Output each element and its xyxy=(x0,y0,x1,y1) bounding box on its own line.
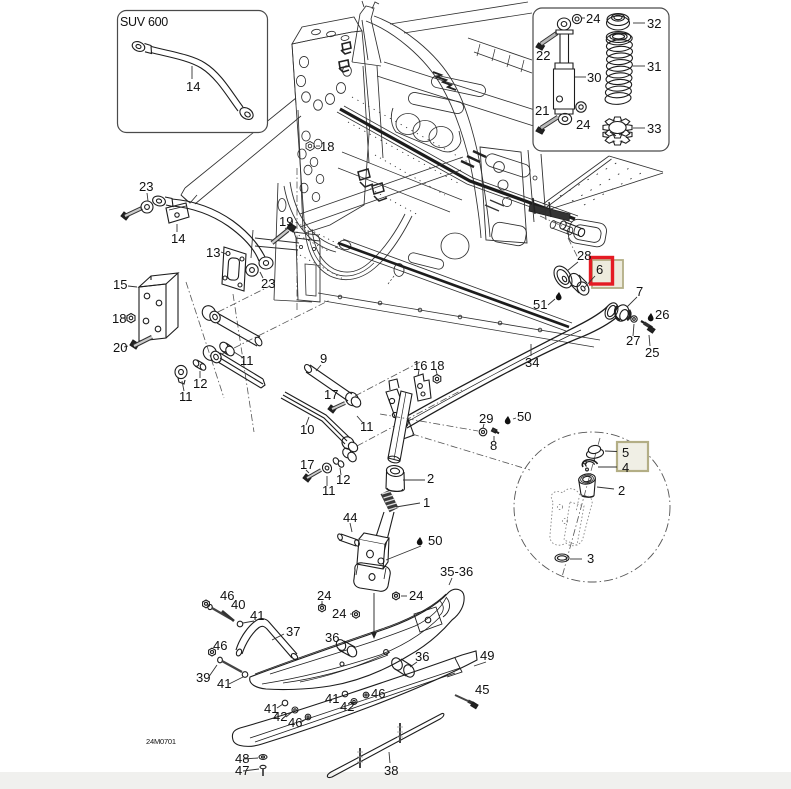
svg-text:18: 18 xyxy=(430,358,444,373)
svg-text:40: 40 xyxy=(231,597,245,612)
svg-text:2: 2 xyxy=(427,471,434,486)
svg-text:34: 34 xyxy=(525,355,539,370)
svg-text:11: 11 xyxy=(322,483,336,498)
svg-text:24: 24 xyxy=(409,588,423,603)
svg-text:45: 45 xyxy=(475,682,489,697)
svg-text:44: 44 xyxy=(343,510,357,525)
svg-text:24: 24 xyxy=(317,588,331,603)
svg-text:24: 24 xyxy=(586,11,600,26)
svg-text:35-36: 35-36 xyxy=(440,564,473,579)
svg-text:12: 12 xyxy=(193,376,207,391)
svg-text:50: 50 xyxy=(517,409,531,424)
svg-text:21: 21 xyxy=(535,103,549,118)
svg-text:15: 15 xyxy=(113,277,127,292)
svg-text:1: 1 xyxy=(423,495,430,510)
svg-text:50: 50 xyxy=(428,533,442,548)
svg-text:28: 28 xyxy=(577,248,591,263)
svg-text:36: 36 xyxy=(325,630,339,645)
svg-text:9: 9 xyxy=(320,351,327,366)
svg-text:30: 30 xyxy=(587,70,601,85)
svg-text:37: 37 xyxy=(286,624,300,639)
svg-text:12: 12 xyxy=(336,472,350,487)
svg-text:29: 29 xyxy=(479,411,493,426)
svg-text:6: 6 xyxy=(596,262,603,277)
svg-text:32: 32 xyxy=(647,16,661,31)
svg-text:25: 25 xyxy=(645,345,659,360)
svg-text:10: 10 xyxy=(300,422,314,437)
svg-text:51: 51 xyxy=(533,297,547,312)
svg-text:7: 7 xyxy=(636,284,643,299)
svg-text:24M0701: 24M0701 xyxy=(146,737,176,746)
svg-text:49: 49 xyxy=(480,648,494,663)
svg-text:14: 14 xyxy=(171,231,185,246)
svg-text:31: 31 xyxy=(647,59,661,74)
svg-text:13: 13 xyxy=(206,245,220,260)
svg-text:18: 18 xyxy=(320,139,334,154)
svg-text:20: 20 xyxy=(113,340,127,355)
svg-text:2: 2 xyxy=(618,483,625,498)
svg-text:22: 22 xyxy=(536,48,550,63)
svg-text:19: 19 xyxy=(279,214,293,229)
svg-text:16: 16 xyxy=(413,358,427,373)
svg-text:5: 5 xyxy=(622,445,629,460)
svg-text:23: 23 xyxy=(139,179,153,194)
svg-text:4: 4 xyxy=(622,460,629,475)
svg-text:14: 14 xyxy=(186,79,200,94)
svg-text:46: 46 xyxy=(213,638,227,653)
svg-text:41: 41 xyxy=(250,608,264,623)
svg-text:38: 38 xyxy=(384,763,398,778)
svg-text:23: 23 xyxy=(261,276,275,291)
svg-text:11: 11 xyxy=(179,389,193,404)
svg-text:18: 18 xyxy=(112,311,126,326)
svg-text:24: 24 xyxy=(332,606,346,621)
svg-text:17: 17 xyxy=(300,457,314,472)
svg-text:11: 11 xyxy=(240,353,254,368)
svg-text:17: 17 xyxy=(324,387,338,402)
svg-text:33: 33 xyxy=(647,121,661,136)
svg-text:24: 24 xyxy=(576,117,590,132)
svg-text:41: 41 xyxy=(325,691,339,706)
svg-text:SUV 600: SUV 600 xyxy=(120,15,168,29)
svg-text:36: 36 xyxy=(415,649,429,664)
svg-text:3: 3 xyxy=(587,551,594,566)
svg-text:26: 26 xyxy=(655,307,669,322)
